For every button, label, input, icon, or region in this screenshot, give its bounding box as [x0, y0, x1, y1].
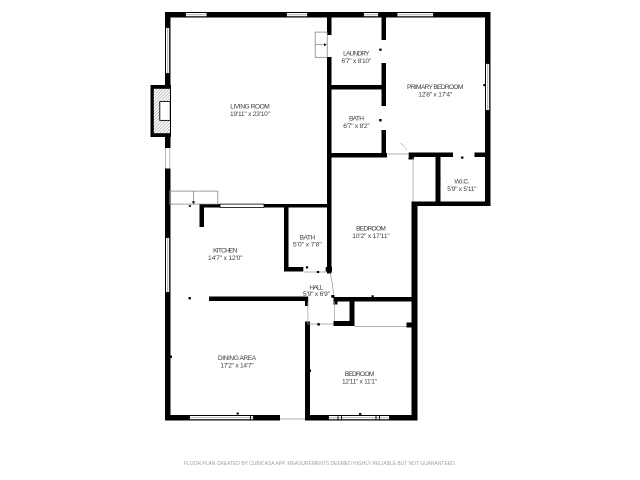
svg-text:14'7" x 12'0": 14'7" x 12'0"	[208, 255, 243, 262]
svg-text:19'11" x 23'10": 19'11" x 23'10"	[230, 111, 271, 118]
svg-text:DINING AREA: DINING AREA	[218, 355, 257, 362]
svg-text:6'7" x 8'10": 6'7" x 8'10"	[341, 58, 371, 65]
svg-text:5'9" x 5'11": 5'9" x 5'11"	[447, 186, 477, 193]
svg-text:PRIMARY BEDROOM: PRIMARY BEDROOM	[407, 84, 463, 91]
svg-text:W.I.C.: W.I.C.	[454, 178, 469, 185]
svg-text:17'2" x 14'7": 17'2" x 14'7"	[220, 362, 254, 369]
svg-text:6'7" x 8'2": 6'7" x 8'2"	[343, 123, 370, 130]
svg-text:12'11" x 11'1": 12'11" x 11'1"	[342, 379, 378, 386]
svg-text:KITCHEN: KITCHEN	[213, 247, 238, 254]
svg-text:BATH: BATH	[300, 234, 316, 241]
svg-text:LIVING ROOM: LIVING ROOM	[230, 104, 270, 111]
svg-text:BEDROOM: BEDROOM	[345, 371, 375, 378]
svg-text:BEDROOM: BEDROOM	[356, 226, 386, 233]
svg-text:10'2" x 17'11": 10'2" x 17'11"	[352, 233, 390, 240]
svg-text:BATH: BATH	[349, 115, 364, 122]
svg-text:FLOOR PLAN CREATED BY CUBICASA: FLOOR PLAN CREATED BY CUBICASA APP. MEAS…	[184, 461, 456, 467]
svg-text:12'8" x 17'4": 12'8" x 17'4"	[418, 91, 453, 98]
svg-text:LAUNDRY: LAUNDRY	[343, 51, 370, 58]
svg-text:5'0" x 7'8": 5'0" x 7'8"	[293, 242, 322, 249]
svg-text:5'9" x 6'9": 5'9" x 6'9"	[303, 291, 331, 298]
